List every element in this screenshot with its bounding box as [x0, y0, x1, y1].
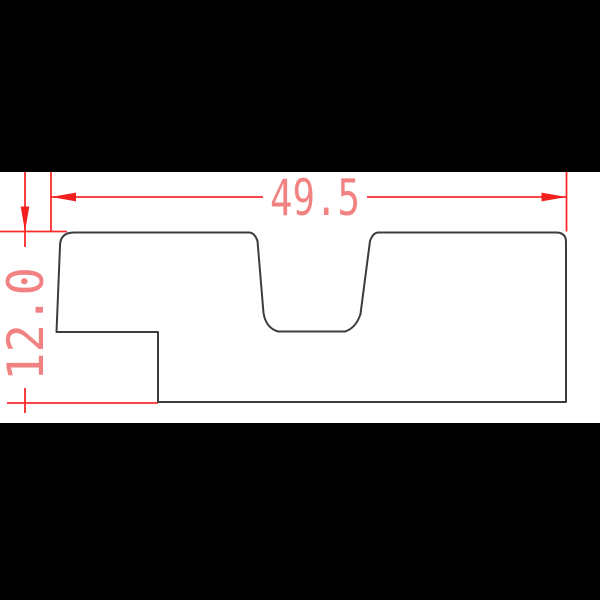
letterbox-bottom-band [0, 423, 600, 600]
drawing-canvas: 49.5 12.0 [0, 0, 600, 600]
dimension-label-height: 12.0 [0, 267, 55, 381]
height-arrow-down-icon [21, 207, 30, 232]
dimension-label-width: 49.5 [270, 169, 360, 227]
letterbox-top-band [0, 0, 600, 172]
width-arrow-left-icon [51, 193, 76, 202]
width-arrow-right-icon [542, 193, 567, 202]
cad-drawing: 49.5 12.0 [0, 0, 600, 600]
profile-outline [57, 233, 567, 403]
